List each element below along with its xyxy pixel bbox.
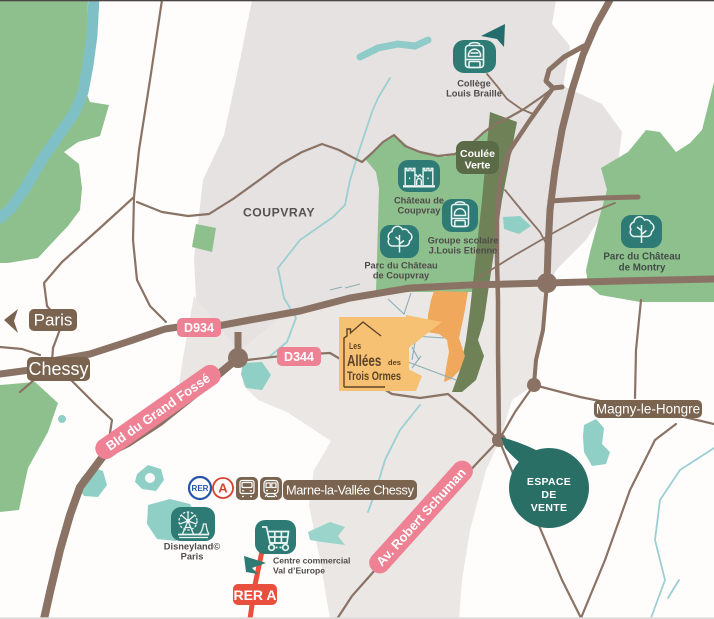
svg-text:de Coupvray: de Coupvray [373, 271, 430, 281]
svg-text:Les: Les [349, 341, 362, 351]
svg-text:RER A: RER A [233, 587, 276, 603]
svg-text:Paris: Paris [34, 311, 73, 330]
svg-text:Val d’Europe: Val d’Europe [273, 566, 325, 576]
svg-text:Verte: Verte [465, 160, 491, 172]
svg-text:Paris: Paris [181, 552, 204, 562]
svg-text:D344: D344 [284, 350, 314, 364]
svg-text:RER: RER [192, 484, 209, 493]
svg-text:Magny-le-Hongre: Magny-le-Hongre [596, 402, 700, 417]
svg-text:Coulée: Coulée [460, 148, 495, 160]
svg-text:Groupe scolaire: Groupe scolaire [428, 236, 499, 246]
svg-text:VENTE: VENTE [531, 502, 568, 514]
svg-text:D934: D934 [184, 321, 214, 335]
svg-text:A: A [218, 481, 228, 496]
svg-text:ESPACE: ESPACE [527, 476, 571, 488]
svg-text:Chessy: Chessy [28, 359, 88, 379]
svg-text:des: des [388, 358, 401, 367]
svg-text:DE: DE [541, 489, 556, 501]
svg-text:Trois Ormes: Trois Ormes [347, 370, 401, 384]
svg-text:Disneyland©: Disneyland© [164, 542, 221, 552]
svg-text:COUPVRAY: COUPVRAY [243, 206, 315, 220]
svg-text:Centre commercial: Centre commercial [273, 556, 350, 566]
svg-text:Marne-la-Vallée Chessy: Marne-la-Vallée Chessy [286, 483, 415, 498]
svg-text:de Montry: de Montry [619, 263, 666, 274]
svg-text:Parc du Château: Parc du Château [603, 252, 680, 263]
svg-text:Collège: Collège [457, 79, 491, 89]
svg-text:Coupvray: Coupvray [398, 206, 442, 216]
svg-text:Parc du Château: Parc du Château [364, 261, 438, 271]
svg-text:Louis Braille: Louis Braille [446, 89, 502, 99]
svg-text:Allées: Allées [347, 351, 382, 369]
svg-text:Château de: Château de [394, 196, 444, 206]
svg-text:J.Louis Etienne: J.Louis Etienne [429, 246, 498, 256]
